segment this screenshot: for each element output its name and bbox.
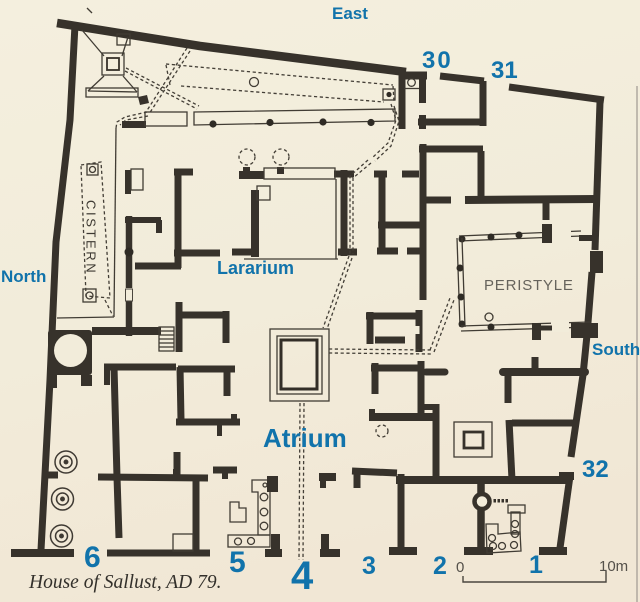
- svg-text:CISTERN: CISTERN: [84, 200, 99, 275]
- svg-text:6: 6: [84, 541, 101, 574]
- svg-text:South: South: [592, 340, 640, 359]
- svg-text:3: 3: [362, 552, 376, 580]
- svg-text:4: 4: [291, 554, 314, 598]
- svg-text:East: East: [332, 4, 368, 23]
- svg-text:PERISTYLE: PERISTYLE: [484, 277, 574, 294]
- svg-text:Lararium: Lararium: [217, 258, 294, 278]
- svg-text:32: 32: [582, 456, 609, 483]
- svg-text:31: 31: [491, 57, 518, 84]
- svg-text:House of Sallust, AD 79.: House of Sallust, AD 79.: [28, 572, 221, 593]
- svg-text:30: 30: [422, 47, 453, 74]
- svg-text:Atrium: Atrium: [263, 423, 347, 453]
- svg-text:1: 1: [529, 551, 543, 579]
- svg-text:2: 2: [433, 552, 447, 580]
- svg-text:5: 5: [229, 546, 246, 579]
- svg-text:North: North: [1, 267, 46, 286]
- svg-text:10m: 10m: [599, 558, 628, 575]
- svg-text:0: 0: [456, 559, 464, 576]
